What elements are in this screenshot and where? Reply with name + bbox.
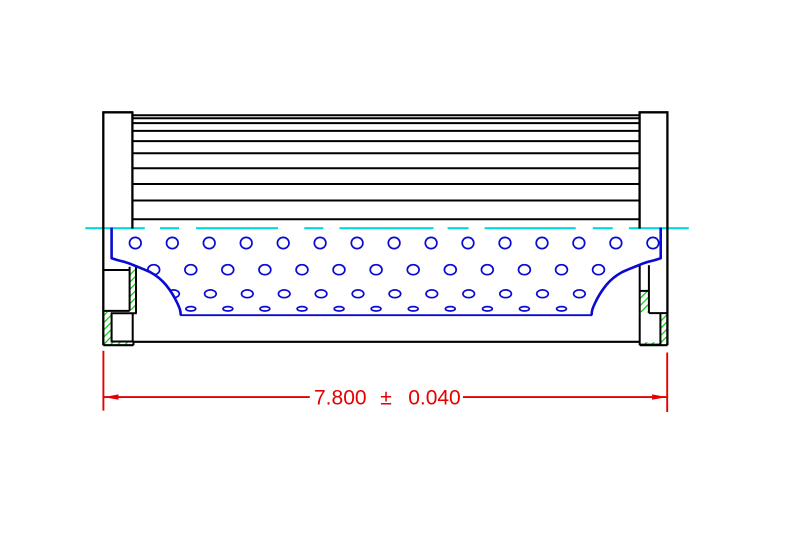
svg-text:0.040: 0.040 xyxy=(408,386,461,409)
svg-text:±: ± xyxy=(380,386,392,409)
svg-text:7.800: 7.800 xyxy=(314,386,367,409)
